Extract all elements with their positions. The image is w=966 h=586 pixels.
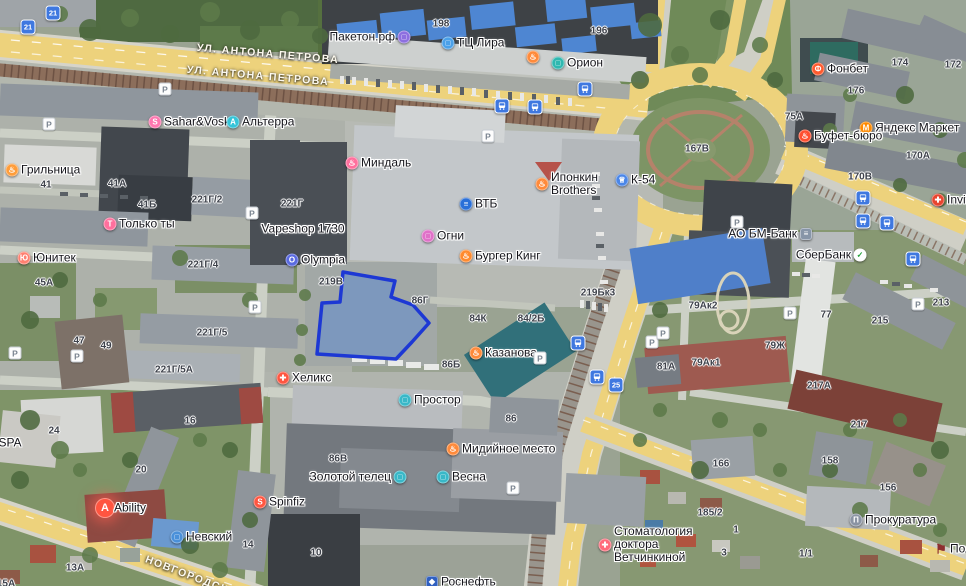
bus-icon xyxy=(909,255,918,264)
bus-stop-icon[interactable] xyxy=(590,370,605,385)
poi-label[interactable]: Ability xyxy=(114,501,146,514)
poi-label[interactable]: Золотой телец xyxy=(310,470,391,483)
parking-icon[interactable]: P xyxy=(731,216,744,229)
poi-icon-letter-A[interactable]: A xyxy=(95,498,115,518)
building-number: 217А xyxy=(807,381,831,392)
building-number: 13А xyxy=(66,563,84,574)
poi-label[interactable]: К-54 xyxy=(631,173,655,186)
poi-label[interactable]: Бургер Кинг xyxy=(475,249,541,262)
poi-label[interactable]: Юнитек xyxy=(33,251,76,264)
building-number: 170А xyxy=(906,151,930,162)
poi-label[interactable]: АО БМ-Банк xyxy=(728,227,797,240)
building-number: 185/2 xyxy=(697,508,722,519)
building-number: 217 xyxy=(851,420,868,431)
poi-label[interactable]: Весна xyxy=(452,470,486,483)
poi-icon-letter-Ф[interactable]: Ф xyxy=(812,63,825,76)
poi-icon-bank[interactable]: ≡ xyxy=(460,198,473,211)
poi-label[interactable]: ВТБ xyxy=(475,197,497,210)
poi-label[interactable]: ТЦ Лира xyxy=(457,36,504,49)
poi-label[interactable]: Огни xyxy=(437,229,464,242)
building-number: 84К xyxy=(469,314,486,325)
parking-icon[interactable]: P xyxy=(482,130,495,143)
building-number: 77 xyxy=(820,310,831,321)
building-number: 79Ак1 xyxy=(692,358,721,369)
building-number: 196 xyxy=(591,26,608,37)
bus-icon xyxy=(531,103,540,112)
building-number: 219В xyxy=(319,277,343,288)
building-number: 45А xyxy=(35,278,53,289)
parking-icon[interactable]: P xyxy=(784,307,797,320)
building-number: 86В xyxy=(329,454,347,465)
poi-icon-medical-cross[interactable]: ✚ xyxy=(932,194,945,207)
route-shield[interactable]: 25 xyxy=(609,378,624,393)
route-shield[interactable]: 21 xyxy=(21,20,36,35)
poi-icon-food[interactable]: ♨ xyxy=(527,51,540,64)
poi-icon-bag[interactable]: □ xyxy=(398,31,411,44)
street-label: УЛ. АНТОНА ПЕТРОВА xyxy=(186,64,329,88)
parking-icon[interactable]: P xyxy=(249,301,262,314)
building-number: 170В xyxy=(848,172,872,183)
building-number: 3 xyxy=(721,548,727,559)
poi-label[interactable]: ИпонкинBrothers xyxy=(551,171,598,197)
poi-icon-food[interactable]: ♨ xyxy=(460,250,473,263)
building-number: 166 xyxy=(713,459,730,470)
building-number: 172 xyxy=(945,60,962,71)
poi-label[interactable]: Невский xyxy=(186,530,232,543)
building-number: 198 xyxy=(433,19,450,30)
building-number: 49 xyxy=(100,341,111,352)
satellite-map-view[interactable]: □Пакетон.рф□ТЦ Лира□Орион♨ФФонбетМЯндекс… xyxy=(0,0,966,586)
poi-label[interactable]: Прокуратура xyxy=(865,513,936,526)
building-number: 10 xyxy=(310,548,321,559)
bus-icon xyxy=(859,194,868,203)
bus-stop-icon[interactable] xyxy=(578,82,593,97)
bus-icon xyxy=(593,373,602,382)
poi-icon-bag[interactable]: □ xyxy=(399,394,412,407)
poi-icon-letter-Ю[interactable]: Ю xyxy=(18,252,31,265)
poi-label[interactable]: Только ты xyxy=(119,217,175,230)
building-number: 86Г xyxy=(412,296,429,307)
poi-label[interactable]: SPA xyxy=(0,436,22,449)
map-labels-layer: □Пакетон.рф□ТЦ Лира□Орион♨ФФонбетМЯндекс… xyxy=(0,0,966,586)
bus-icon xyxy=(859,217,868,226)
poi-label[interactable]: Альтерра xyxy=(242,115,294,128)
bus-stop-icon[interactable] xyxy=(856,214,871,229)
poi-label[interactable]: Пол xyxy=(950,542,966,555)
parking-icon[interactable]: P xyxy=(657,327,670,340)
poi-label[interactable]: Казанова xyxy=(485,346,537,359)
parking-icon[interactable]: P xyxy=(159,83,172,96)
poi-label[interactable]: Яндекс Маркет xyxy=(875,121,959,134)
poi-icon-cup[interactable]: ♕ xyxy=(616,174,629,187)
poi-label[interactable]: СтоматологиядоктораВетчинкиной xyxy=(614,525,693,565)
poi-label[interactable]: Olympia xyxy=(301,253,345,266)
poi-icon-gov[interactable]: Π xyxy=(850,514,863,527)
parking-icon[interactable]: P xyxy=(246,207,259,220)
building-number: 221Г/5 xyxy=(197,328,228,339)
building-number: 15А xyxy=(0,579,15,586)
poi-label[interactable]: Пакетон.рф xyxy=(329,30,395,43)
building-number: 86Б xyxy=(442,360,460,371)
poi-icon-bag[interactable]: □ xyxy=(394,471,407,484)
poi-icon-bank[interactable]: ≡ xyxy=(800,228,812,240)
building-number: 14 xyxy=(242,540,253,551)
building-number: 47 xyxy=(73,336,84,347)
building-number: 41А xyxy=(108,179,126,190)
building-number: 81А xyxy=(657,362,675,373)
poi-icon-bag[interactable]: □ xyxy=(552,57,565,70)
building-number: 215 xyxy=(872,316,889,327)
parking-icon[interactable]: P xyxy=(71,350,84,363)
poi-label[interactable]: Хеликс xyxy=(292,371,331,384)
building-number: 84/2Б xyxy=(518,314,545,325)
building-number: 75А xyxy=(785,112,803,123)
poi-label[interactable]: Простор xyxy=(414,393,461,406)
poi-icon-sber-check[interactable]: ✓ xyxy=(854,249,867,262)
bus-stop-icon[interactable] xyxy=(906,252,921,267)
building-number: 156 xyxy=(880,483,897,494)
poi-label[interactable]: Буфет-бюро xyxy=(814,129,882,142)
poi-icon-medical-cross[interactable]: ✚ xyxy=(277,372,290,385)
building-number: 79Ак2 xyxy=(689,301,718,312)
poi-icon-medical-cross[interactable]: ✚ xyxy=(599,539,612,552)
building-number: 221Г/4 xyxy=(188,260,219,271)
route-shield[interactable]: 21 xyxy=(46,6,61,21)
building-number: 219Бк3 xyxy=(581,288,615,299)
poi-label[interactable]: Фонбет xyxy=(827,62,868,75)
poi-icon-letter-S[interactable]: S xyxy=(254,496,267,509)
poi-icon-food[interactable]: ♨ xyxy=(799,130,812,143)
bus-stop-icon[interactable] xyxy=(495,99,510,114)
street-label: НОВГОРОДСКАЯ xyxy=(144,553,247,586)
bus-icon xyxy=(574,339,583,348)
building-number: 16 xyxy=(184,416,195,427)
poi-icon-food[interactable]: ♨ xyxy=(6,164,19,177)
poi-icon-flag[interactable]: ⚑ xyxy=(935,543,948,556)
poi-icon-fuel[interactable]: ◆ xyxy=(426,576,438,586)
building-number: 221Г/5А xyxy=(155,365,193,376)
bus-stop-icon[interactable] xyxy=(880,216,895,231)
poi-label[interactable]: Spinfiz xyxy=(269,495,305,508)
poi-label[interactable]: Invit xyxy=(947,193,966,206)
bus-stop-icon[interactable] xyxy=(571,336,586,351)
poi-icon-letter-Т[interactable]: Т xyxy=(104,218,117,231)
bus-stop-icon[interactable] xyxy=(856,191,871,206)
poi-label[interactable]: Vapeshop 1730 xyxy=(261,222,344,235)
poi-icon-letter-А[interactable]: А xyxy=(227,116,240,129)
poi-icon-bag[interactable]: □ xyxy=(437,471,450,484)
building-number: 176 xyxy=(848,86,865,97)
poi-label[interactable]: Роснефть xyxy=(441,575,496,586)
building-number: 1 xyxy=(733,525,739,536)
parking-icon[interactable]: P xyxy=(912,298,925,311)
building-number: 24 xyxy=(48,426,59,437)
parking-icon[interactable]: P xyxy=(9,347,22,360)
bus-stop-icon[interactable] xyxy=(528,100,543,115)
poi-icon-letter-O[interactable]: O xyxy=(286,254,299,267)
building-number: 41 xyxy=(40,180,51,191)
building-number: 158 xyxy=(822,456,839,467)
poi-label[interactable]: Мидийное место xyxy=(462,442,555,455)
poi-icon-food[interactable]: ♨ xyxy=(447,443,460,456)
poi-label[interactable]: СберБанк xyxy=(796,248,851,261)
building-number: 20 xyxy=(135,465,146,476)
building-number: 174 xyxy=(892,58,909,69)
building-number: 1/1 xyxy=(799,549,813,560)
building-number: 41Б xyxy=(138,200,156,211)
poi-icon-bag[interactable]: □ xyxy=(422,230,435,243)
poi-label[interactable]: Миндаль xyxy=(361,156,411,169)
parking-icon[interactable]: P xyxy=(507,482,520,495)
poi-icon-bag[interactable]: □ xyxy=(171,531,184,544)
bus-icon xyxy=(581,85,590,94)
poi-icon-food[interactable]: ♨ xyxy=(346,157,359,170)
building-number: 221Г xyxy=(281,199,303,210)
building-number: 221Г/2 xyxy=(192,195,223,206)
parking-icon[interactable]: P xyxy=(534,352,547,365)
poi-label[interactable]: Грильница xyxy=(21,163,80,176)
poi-icon-food[interactable]: ♨ xyxy=(536,178,549,191)
building-number: 79Ж xyxy=(765,341,785,352)
parking-icon[interactable]: P xyxy=(43,118,56,131)
building-number: 86 xyxy=(505,414,516,425)
building-number: 167В xyxy=(685,144,709,155)
bus-icon xyxy=(498,102,507,111)
poi-label[interactable]: Орион xyxy=(567,56,603,69)
building-number: 213 xyxy=(933,298,950,309)
street-label: УЛ. АНТОНА ПЕТРОВА xyxy=(196,42,339,66)
bus-icon xyxy=(883,219,892,228)
poi-icon-bag[interactable]: □ xyxy=(442,37,455,50)
poi-icon-letter-S[interactable]: S xyxy=(149,116,162,129)
poi-icon-food[interactable]: ♨ xyxy=(470,347,483,360)
poi-label[interactable]: Sahar&Vosk xyxy=(164,115,230,128)
